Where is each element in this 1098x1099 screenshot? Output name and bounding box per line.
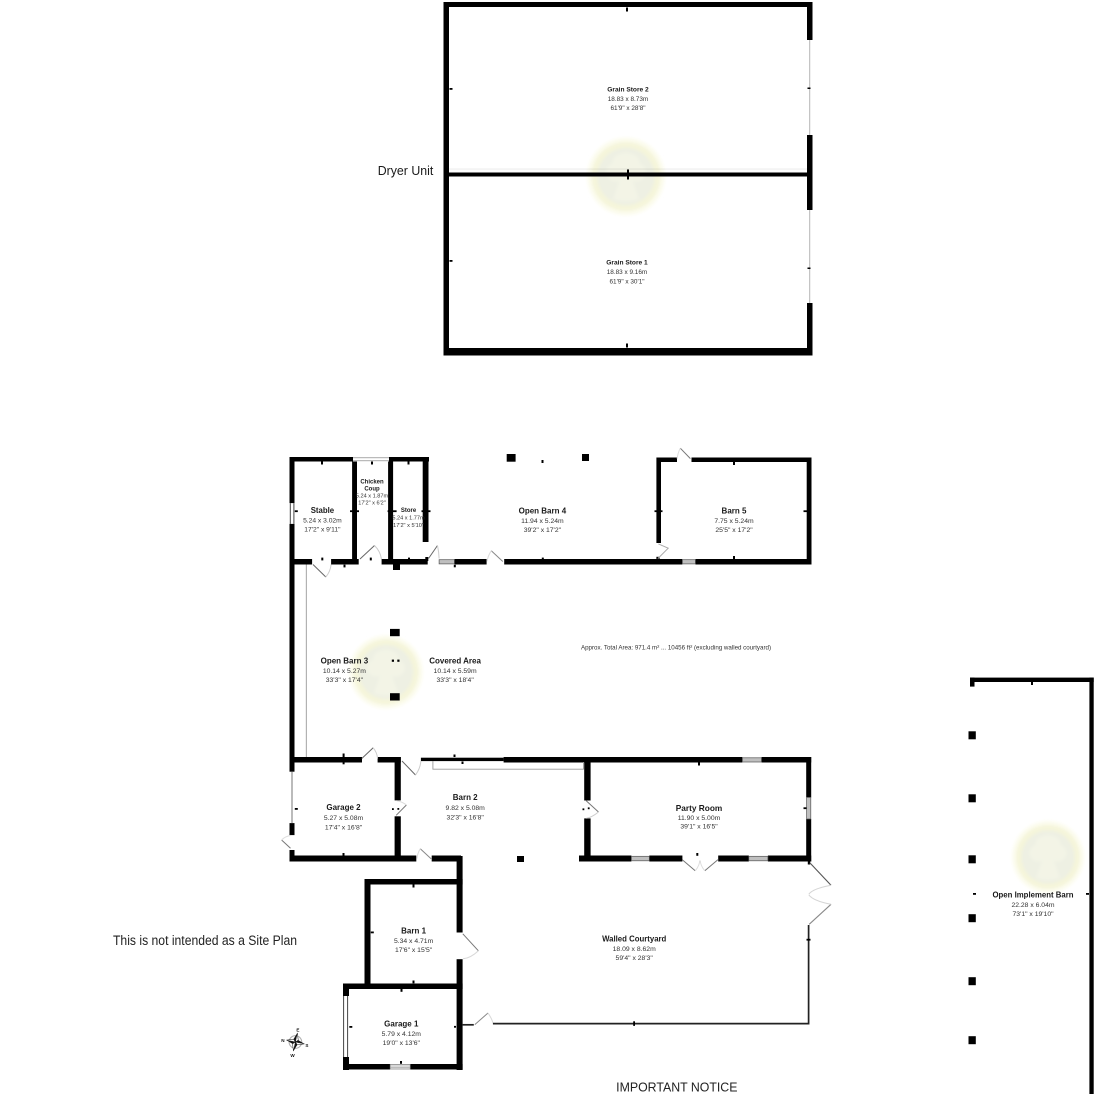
svg-text:61'9" x 28'8": 61'9" x 28'8" xyxy=(610,105,645,112)
svg-text:11.90 x 5.00m: 11.90 x 5.00m xyxy=(678,815,721,822)
svg-text:7.75 x 5.24m: 7.75 x 5.24m xyxy=(714,518,754,525)
svg-text:Barn 5: Barn 5 xyxy=(722,507,747,516)
svg-text:Approx. Total Area: 971.4 m² .: Approx. Total Area: 971.4 m² ... 10456 f… xyxy=(581,644,771,651)
svg-text:33'3" x 18'4": 33'3" x 18'4" xyxy=(436,677,474,684)
svg-text:Garage 1: Garage 1 xyxy=(384,1020,419,1029)
svg-text:Dryer Unit: Dryer Unit xyxy=(378,163,434,178)
svg-text:39'2" x 17'2": 39'2" x 17'2" xyxy=(524,527,562,534)
svg-text:17'6" x 15'5": 17'6" x 15'5" xyxy=(395,947,433,954)
svg-text:E: E xyxy=(296,1028,299,1033)
svg-text:Grain Store 2: Grain Store 2 xyxy=(607,87,649,94)
svg-text:Walled Courtyard: Walled Courtyard xyxy=(602,935,666,944)
svg-text:Coup: Coup xyxy=(364,487,380,493)
svg-text:59'4" x 28'3": 59'4" x 28'3" xyxy=(616,955,654,962)
svg-text:5.79 x 4.12m: 5.79 x 4.12m xyxy=(382,1031,422,1038)
svg-text:Barn 1: Barn 1 xyxy=(401,927,426,936)
svg-text:Stable: Stable xyxy=(311,506,335,515)
svg-text:Open Barn 4: Open Barn 4 xyxy=(519,507,567,516)
svg-text:5.24 x 1.77m: 5.24 x 1.77m xyxy=(392,516,425,522)
svg-text:19'0" x 13'6": 19'0" x 13'6" xyxy=(383,1040,421,1047)
svg-text:Grain Store 1: Grain Store 1 xyxy=(606,260,648,267)
svg-text:33'3" x 17'4": 33'3" x 17'4" xyxy=(326,677,364,684)
svg-text:5.34 x 4.71m: 5.34 x 4.71m xyxy=(394,938,434,945)
svg-text:5.24 x 3.02m: 5.24 x 3.02m xyxy=(303,518,342,525)
svg-text:73'1" x 19'10": 73'1" x 19'10" xyxy=(1012,911,1054,918)
svg-text:9.82 x 5.08m: 9.82 x 5.08m xyxy=(446,805,486,812)
svg-text:17'2" x 6'2": 17'2" x 6'2" xyxy=(358,501,386,507)
svg-text:IMPORTANT NOTICE: IMPORTANT NOTICE xyxy=(616,1079,737,1094)
svg-text:10.14 x 5.27m: 10.14 x 5.27m xyxy=(323,668,366,675)
svg-text:Garage 2: Garage 2 xyxy=(326,803,361,812)
svg-text:Open Implement Barn: Open Implement Barn xyxy=(992,891,1073,900)
svg-text:39'1" x 16'5": 39'1" x 16'5" xyxy=(680,824,718,831)
svg-text:5.24 x 1.87m: 5.24 x 1.87m xyxy=(356,494,389,500)
svg-text:Store: Store xyxy=(401,508,417,514)
svg-text:18.83 x 9.16m: 18.83 x 9.16m xyxy=(607,269,648,276)
svg-text:Party Room: Party Room xyxy=(676,803,723,813)
svg-text:5.27 x 5.08m: 5.27 x 5.08m xyxy=(324,815,364,822)
svg-text:11.94 x 5.24m: 11.94 x 5.24m xyxy=(521,518,564,525)
svg-text:10.14 x 5.59m: 10.14 x 5.59m xyxy=(434,668,477,675)
svg-text:22.28 x 6.04m: 22.28 x 6.04m xyxy=(1011,902,1054,909)
svg-text:32'3" x 16'8": 32'3" x 16'8" xyxy=(447,815,485,822)
svg-text:Open Barn 3: Open Barn 3 xyxy=(321,657,369,666)
svg-text:17'2" x 5'10": 17'2" x 5'10" xyxy=(393,523,424,529)
svg-text:Covered Area: Covered Area xyxy=(429,657,481,666)
svg-text:18.83 x 8.73m: 18.83 x 8.73m xyxy=(608,96,649,103)
svg-text:18.09 x 8.62m: 18.09 x 8.62m xyxy=(613,946,656,953)
svg-text:This is not intended as a Site: This is not intended as a Site Plan xyxy=(113,933,297,948)
svg-text:17'4" x 16'8": 17'4" x 16'8" xyxy=(325,825,363,832)
svg-text:61'9" x 30'1": 61'9" x 30'1" xyxy=(609,279,644,286)
svg-text:Barn 2: Barn 2 xyxy=(453,793,478,802)
svg-text:Chicken: Chicken xyxy=(360,480,384,486)
svg-text:25'5" x 17'2": 25'5" x 17'2" xyxy=(715,527,753,534)
svg-text:17'2" x 9'11": 17'2" x 9'11" xyxy=(304,527,341,534)
svg-text:S: S xyxy=(305,1043,308,1048)
svg-text:W: W xyxy=(290,1053,295,1058)
